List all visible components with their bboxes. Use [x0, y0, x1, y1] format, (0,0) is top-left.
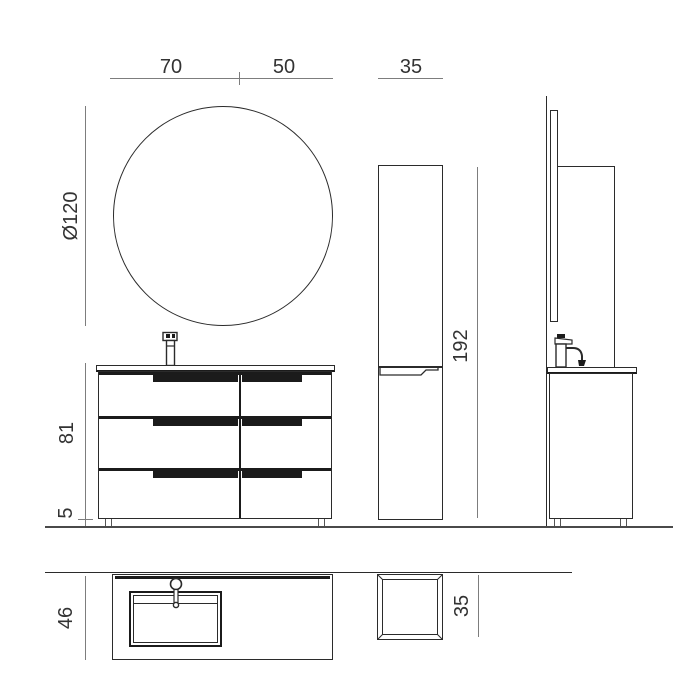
drawer-middle-left	[99, 416, 239, 468]
dim-label-column-depth: 35	[438, 582, 486, 630]
mirror-front	[113, 106, 333, 326]
dim-label-column-width: 35	[386, 55, 436, 79]
drawer-handle	[153, 374, 238, 382]
faucet-front-icon	[160, 331, 182, 367]
dim-line-vanity-width	[110, 78, 333, 79]
dim-line-column-width	[378, 78, 443, 79]
technical-drawing-canvas: 70 50 35 Ø120	[0, 0, 700, 700]
column-plan-mitre-lines	[377, 574, 443, 640]
drawer-middle-right	[241, 416, 331, 468]
drawer-bottom-left	[99, 468, 239, 518]
drawer-handle	[153, 470, 238, 478]
dim-label-vanity-width-right: 50	[259, 55, 309, 79]
drawer-handle	[242, 374, 302, 382]
dim-label-mirror-diameter: Ø120	[47, 192, 95, 240]
dim-label-vanity-depth: 46	[42, 594, 90, 642]
floor-line	[45, 526, 673, 528]
drawer-handle	[153, 418, 238, 426]
vanity-leg-front-left	[105, 519, 112, 526]
vanity-leg-front-right	[318, 519, 325, 526]
drawer-top-right	[241, 372, 331, 416]
drawer-bottom-right	[241, 468, 331, 518]
dim-label-vanity-width-left: 70	[146, 55, 196, 79]
column-handle-notch	[379, 367, 442, 379]
dim-label-vanity-height: 81	[43, 409, 91, 457]
wall-line-side	[546, 96, 547, 527]
dim-label-leg-height: 5	[42, 489, 90, 537]
column-front	[378, 165, 443, 520]
vanity-leg-side-back	[554, 519, 561, 526]
drawer-handle	[242, 470, 302, 478]
faucet-top-icon	[166, 574, 186, 614]
vanity-cabinet-side	[549, 373, 633, 519]
countertop-back-edge	[115, 576, 330, 579]
vanity-leg-side-front	[620, 519, 627, 526]
dim-label-column-height: 192	[437, 322, 485, 370]
drawer-top-left	[99, 372, 239, 416]
faucet-side-icon	[548, 332, 593, 368]
drawer-handle	[242, 418, 302, 426]
dim-tick-vanity-width-split	[239, 72, 240, 85]
